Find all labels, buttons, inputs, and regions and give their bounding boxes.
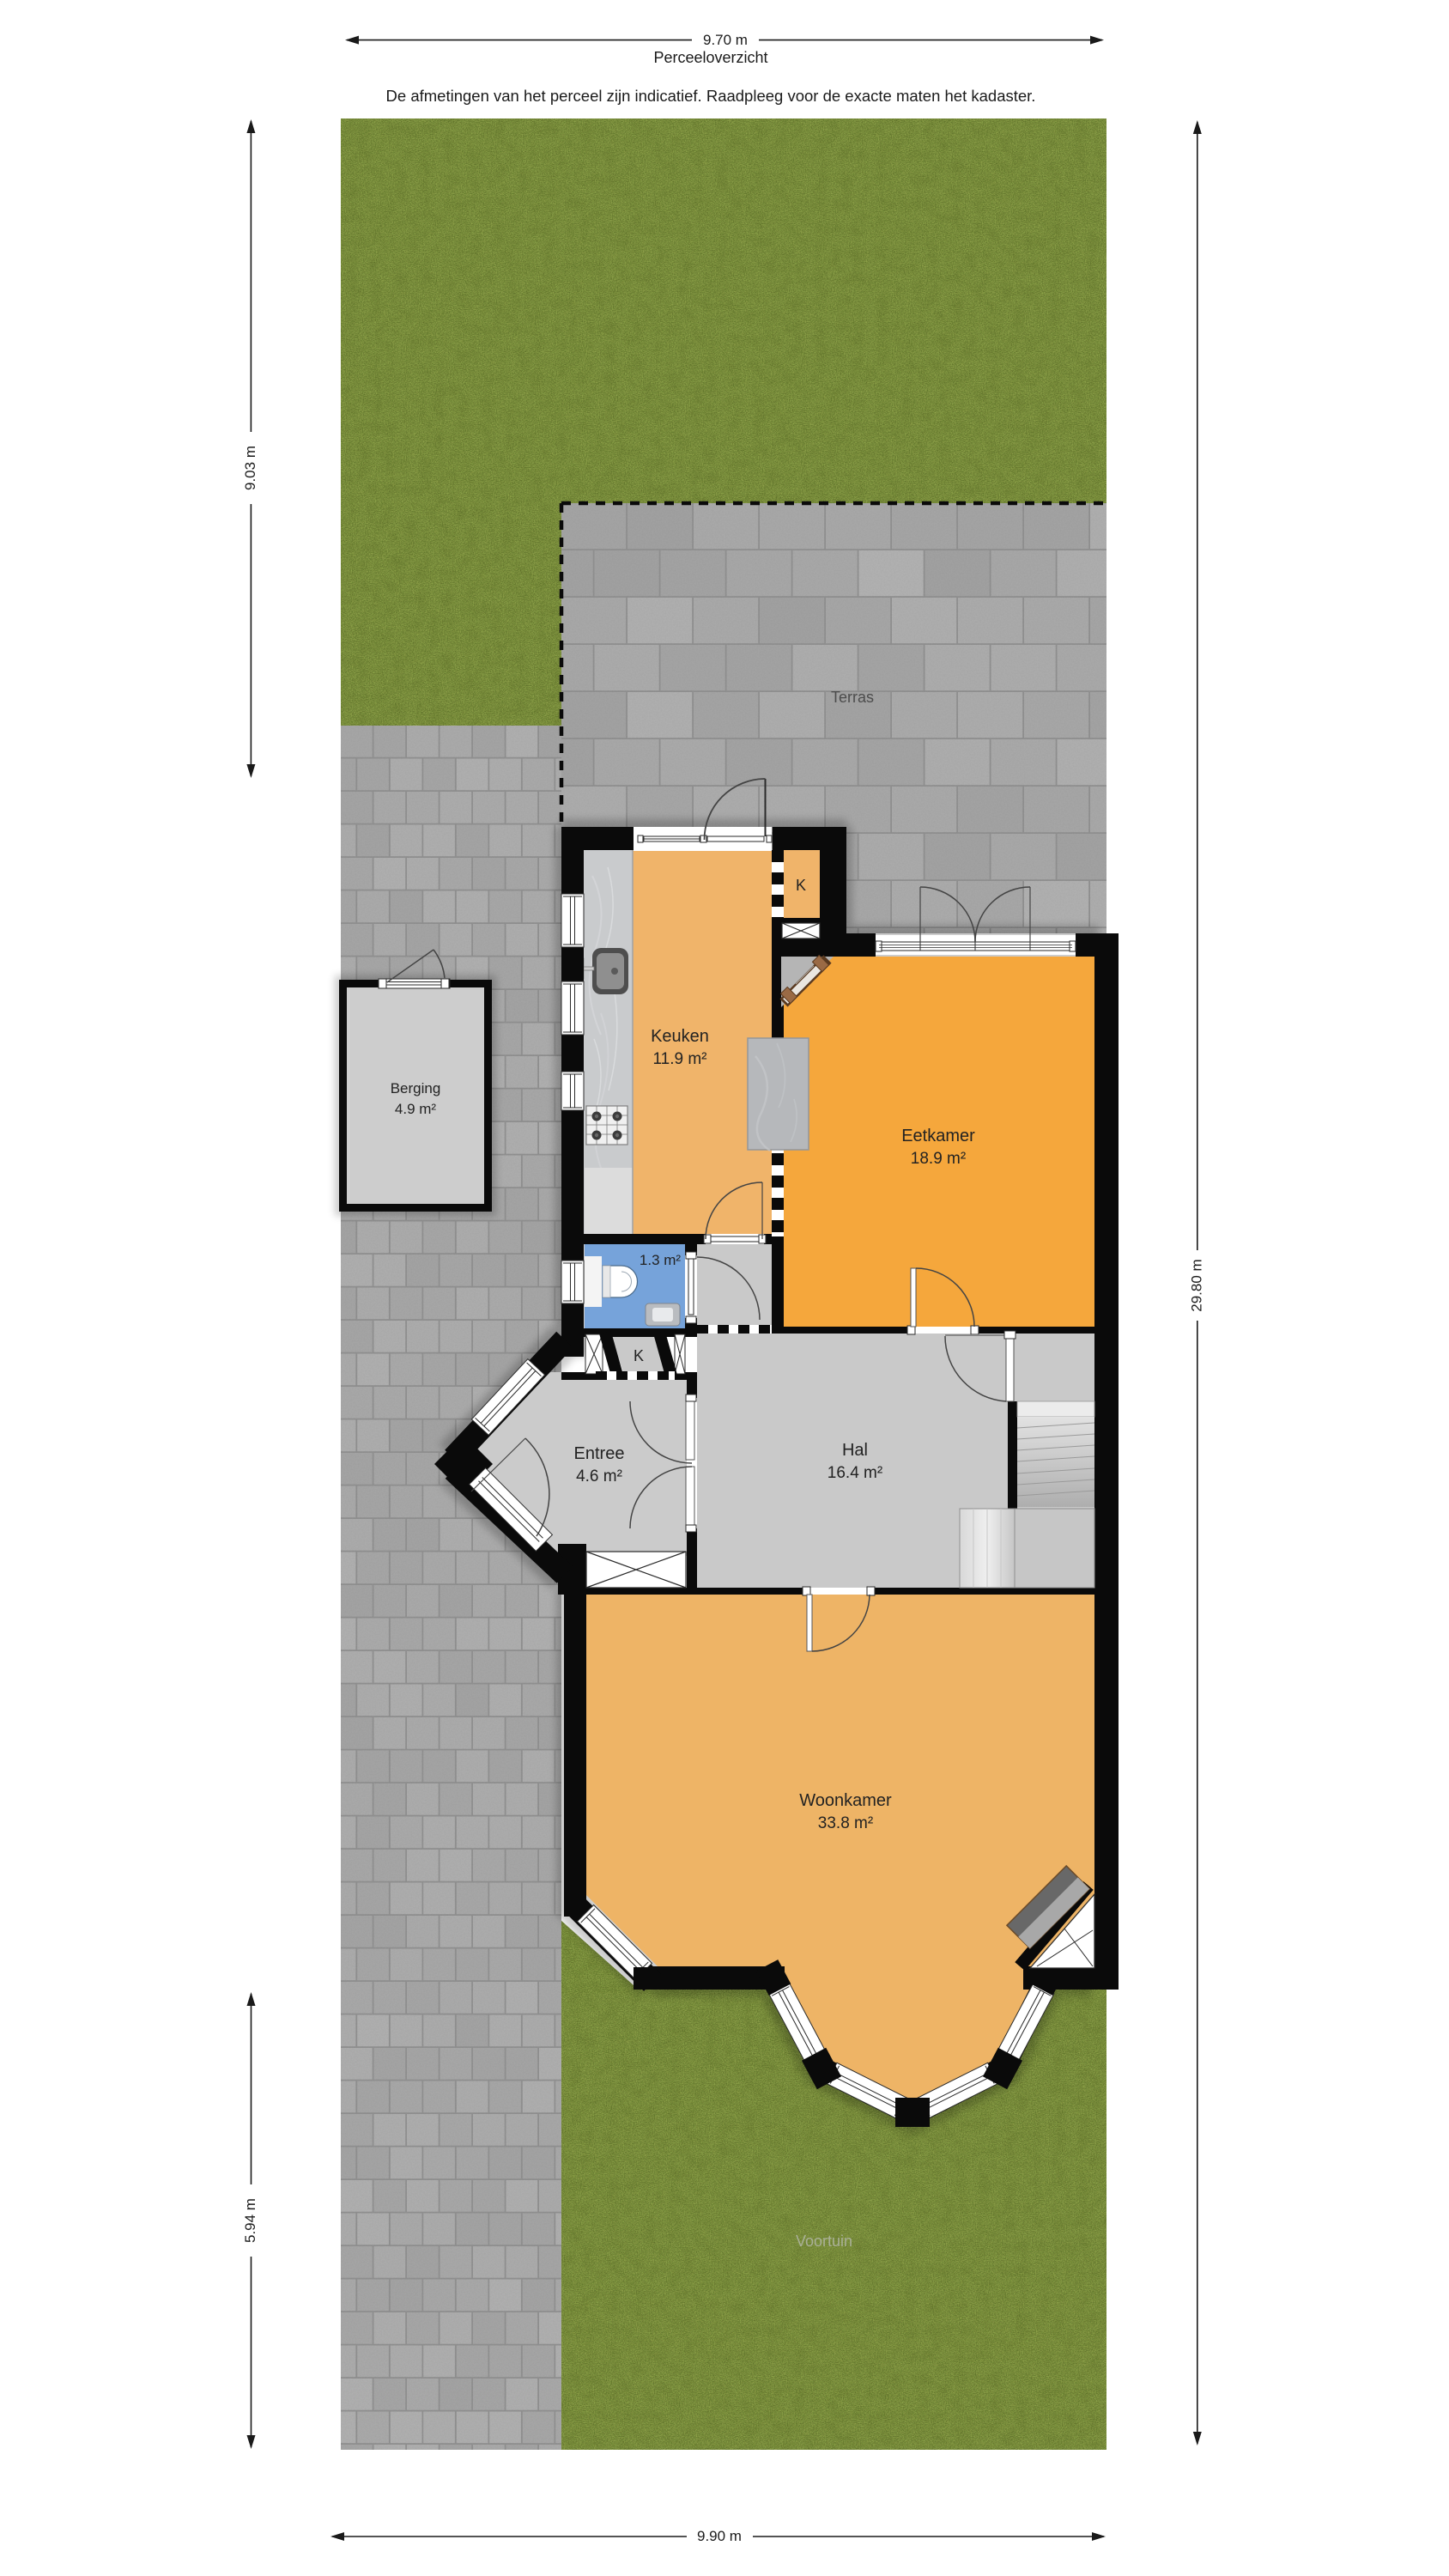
svg-text:Berging: Berging <box>391 1080 441 1097</box>
svg-text:Eetkamer: Eetkamer <box>901 1127 975 1145</box>
svg-text:1.3 m²: 1.3 m² <box>640 1252 682 1268</box>
svg-text:Keuken: Keuken <box>651 1027 709 1046</box>
svg-text:4.6 m²: 4.6 m² <box>576 1467 622 1485</box>
svg-text:Hal: Hal <box>842 1441 868 1460</box>
svg-text:Woonkamer: Woonkamer <box>799 1791 892 1810</box>
svg-text:18.9 m²: 18.9 m² <box>911 1150 966 1168</box>
svg-text:4.9 m²: 4.9 m² <box>395 1101 437 1117</box>
svg-text:9.03 m: 9.03 m <box>242 446 258 490</box>
svg-text:K: K <box>796 877 806 894</box>
svg-text:11.9 m²: 11.9 m² <box>652 1050 706 1068</box>
svg-text:16.4 m²: 16.4 m² <box>828 1464 882 1482</box>
svg-text:29.80 m: 29.80 m <box>1188 1259 1204 1311</box>
svg-text:Voortuin: Voortuin <box>796 2233 852 2250</box>
svg-text:Perceeloverzicht: Perceeloverzicht <box>653 49 767 66</box>
svg-text:De afmetingen van het perceel: De afmetingen van het perceel zijn indic… <box>386 87 1036 105</box>
svg-text:Terras: Terras <box>831 689 874 706</box>
svg-text:5.94 m: 5.94 m <box>242 2198 258 2243</box>
svg-text:K: K <box>634 1347 644 1364</box>
svg-text:9.90 m: 9.90 m <box>697 2528 742 2544</box>
svg-text:Entree: Entree <box>574 1444 625 1463</box>
svg-text:9.70 m: 9.70 m <box>703 32 748 48</box>
svg-text:33.8 m²: 33.8 m² <box>818 1814 873 1832</box>
